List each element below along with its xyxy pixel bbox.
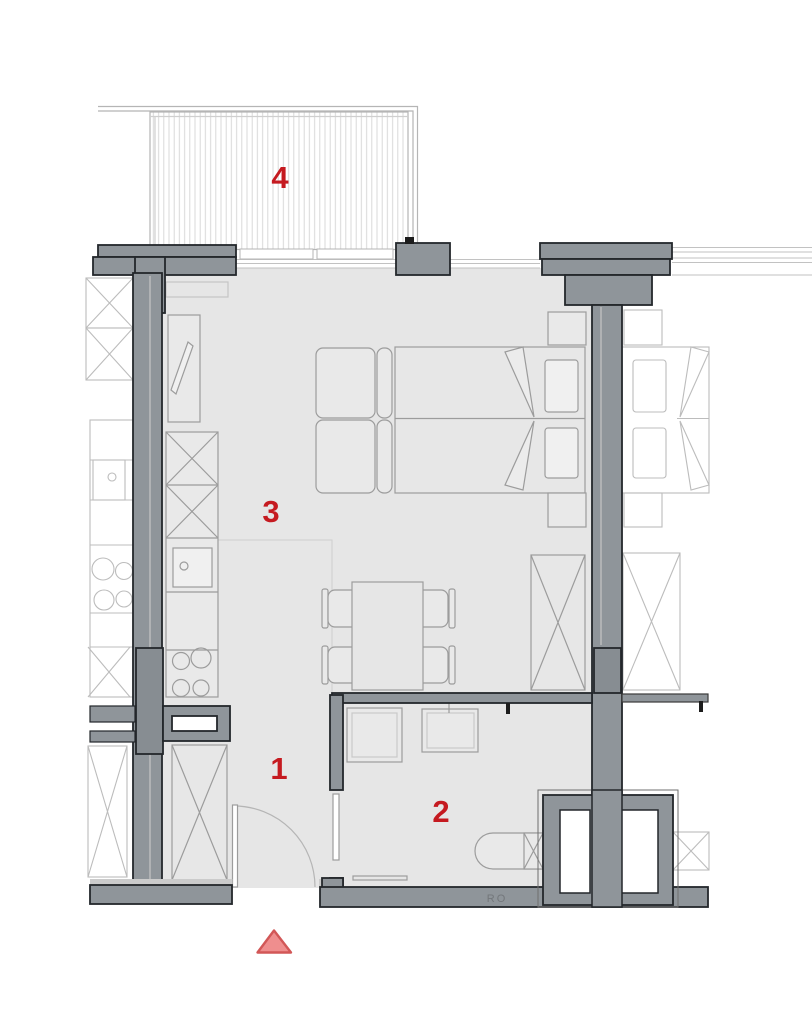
bottom-wall-light-band (90, 879, 232, 885)
nightstand (548, 493, 586, 527)
sofa-backrest (377, 420, 392, 493)
neighbor-cooktop (92, 558, 114, 580)
room-label-bathroom: 2 (432, 794, 449, 829)
entrance-marker-triangle (258, 931, 292, 953)
shower-tray (347, 708, 402, 762)
wall-top-right-band (540, 243, 672, 259)
chair-backrest (322, 589, 328, 628)
nightstand (548, 312, 586, 345)
balcony-door-jamb-tick (405, 237, 414, 244)
washbasin (422, 709, 478, 752)
kitchen-run (166, 432, 218, 697)
wall-mid-pier (396, 243, 450, 275)
neighbor-right-bedroom (622, 310, 709, 870)
neighbor-nightstand (624, 493, 662, 527)
neighbor-blanket-fold (680, 421, 709, 490)
chair-backrest (449, 646, 455, 684)
bathroom-sliding-door (333, 794, 339, 860)
neighbor-wall-end-tick (699, 701, 703, 712)
wall-top-right-block (565, 275, 652, 305)
neighbor-partition-wall (622, 694, 708, 702)
party-wall-right-lower (592, 790, 622, 907)
wardrobe-hallway (172, 745, 227, 880)
neighbor-pillow (633, 428, 666, 478)
room-label-hallway: 1 (270, 751, 287, 786)
bathroom-left-wall (330, 695, 343, 790)
duct-opening (172, 716, 217, 731)
neighbor-wall-stub (90, 731, 135, 742)
neighbor-counter (90, 420, 133, 697)
wall-top-left-band (98, 245, 236, 257)
wall-left-column (136, 648, 163, 754)
neighbor-wall-stub (90, 706, 135, 722)
pillow (545, 428, 578, 478)
wall-inscription: RO (487, 893, 508, 905)
shaft-cell (560, 810, 590, 893)
bathroom-door-tick (506, 703, 510, 714)
party-wall-left (133, 273, 162, 885)
wardrobe-living (531, 555, 585, 690)
bottom-wall-left (90, 885, 232, 904)
sofa-cushion (316, 420, 375, 493)
floor-plan-svg: RO 4 3 1 2 (0, 0, 812, 1024)
wall-right-column (594, 648, 621, 693)
sofa (316, 348, 392, 493)
neighbor-left-kitchen (86, 278, 133, 877)
shaft-cell (618, 810, 658, 893)
neighbor-pillow (633, 360, 666, 412)
balcony-door-sill (240, 249, 313, 259)
balcony (98, 107, 418, 250)
bathroom-top-wall (332, 693, 592, 703)
neighbor-nightstand (624, 310, 662, 345)
sofa-cushion (316, 348, 375, 418)
neighbor-blanket-fold (680, 347, 709, 417)
wall-top-right-band2 (542, 259, 670, 275)
chair-backrest (449, 589, 455, 628)
dining-table (352, 582, 423, 690)
pillow (545, 360, 578, 412)
kitchen-sink (173, 548, 212, 587)
room-label-living-kitchen: 3 (262, 494, 279, 529)
sofa-backrest (377, 348, 392, 418)
chair-backrest (322, 646, 328, 684)
room-label-balcony: 4 (271, 160, 289, 195)
floor-plan-page: RO 4 3 1 2 (0, 0, 812, 1024)
window-sill (317, 249, 393, 259)
door-leaf (233, 805, 238, 887)
